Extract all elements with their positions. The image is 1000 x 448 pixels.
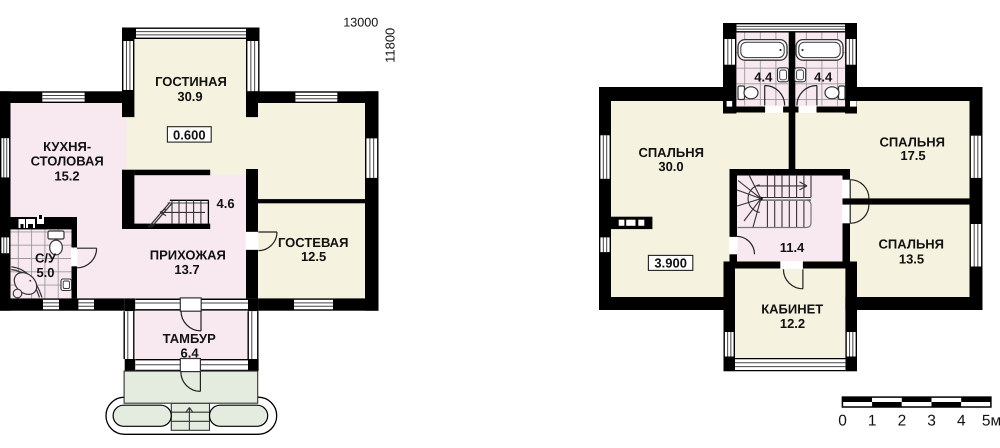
svg-text:ГОСТЕВАЯ: ГОСТЕВАЯ [278,235,348,250]
svg-text:ТАМБУР: ТАМБУР [163,331,216,346]
svg-text:ГОСТИНАЯ: ГОСТИНАЯ [155,74,227,89]
svg-text:5.0: 5.0 [36,265,54,280]
svg-text:КАБИНЕТ: КАБИНЕТ [761,302,823,317]
svg-text:С/У: С/У [35,250,57,265]
svg-text:КУХНЯ-: КУХНЯ- [43,139,91,154]
svg-text:3.900: 3.900 [654,256,687,271]
svg-text:5м: 5м [982,413,1000,430]
svg-text:4.4: 4.4 [754,70,773,85]
svg-text:13.7: 13.7 [174,262,199,277]
svg-text:12.5: 12.5 [301,249,326,264]
svg-text:11.4: 11.4 [780,240,805,255]
svg-text:4.4: 4.4 [814,70,833,85]
svg-text:ПРИХОЖАЯ: ПРИХОЖАЯ [150,248,226,263]
svg-text:0: 0 [838,413,847,430]
svg-text:СПАЛЬНЯ: СПАЛЬНЯ [879,237,944,252]
svg-text:17.5: 17.5 [900,148,925,163]
svg-text:6.4: 6.4 [181,346,200,361]
svg-text:11800: 11800 [382,28,397,63]
svg-text:4.6: 4.6 [217,196,235,211]
svg-text:30.0: 30.0 [658,159,683,174]
svg-text:4: 4 [957,413,966,430]
svg-text:1: 1 [868,413,877,430]
svg-text:3: 3 [927,413,936,430]
svg-text:2: 2 [898,413,907,430]
svg-text:30.9: 30.9 [177,89,202,104]
svg-text:0.600: 0.600 [173,127,206,142]
svg-text:13.5: 13.5 [899,251,924,266]
svg-text:15.2: 15.2 [54,168,79,183]
svg-text:СТОЛОВАЯ: СТОЛОВАЯ [31,154,104,169]
svg-text:12.2: 12.2 [780,316,805,331]
svg-text:13000: 13000 [343,16,378,30]
